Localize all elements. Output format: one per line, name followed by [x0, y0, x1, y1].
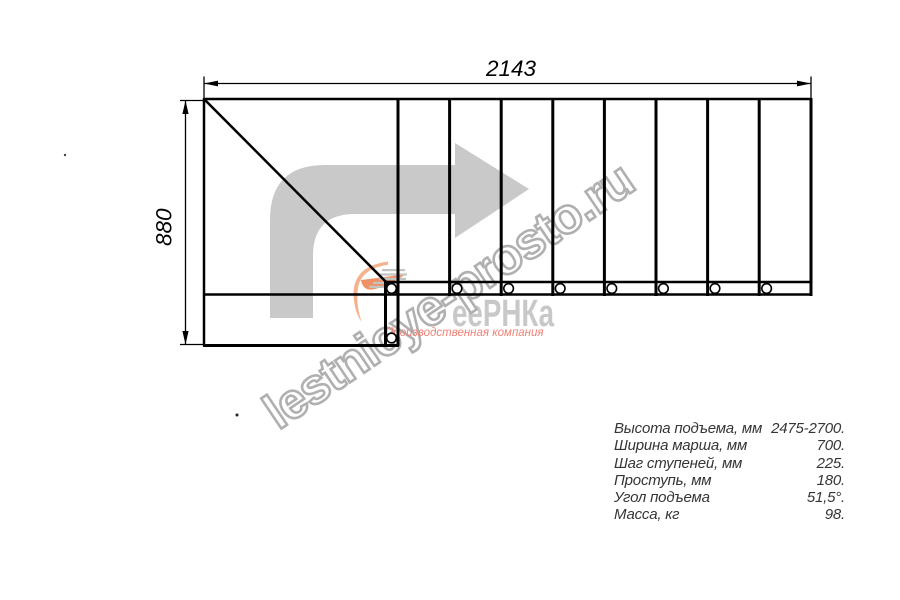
svg-text:Производственная компания: Производственная компания	[385, 327, 544, 339]
svg-text:880: 880	[152, 208, 177, 246]
svg-text:2143: 2143	[485, 56, 537, 81]
